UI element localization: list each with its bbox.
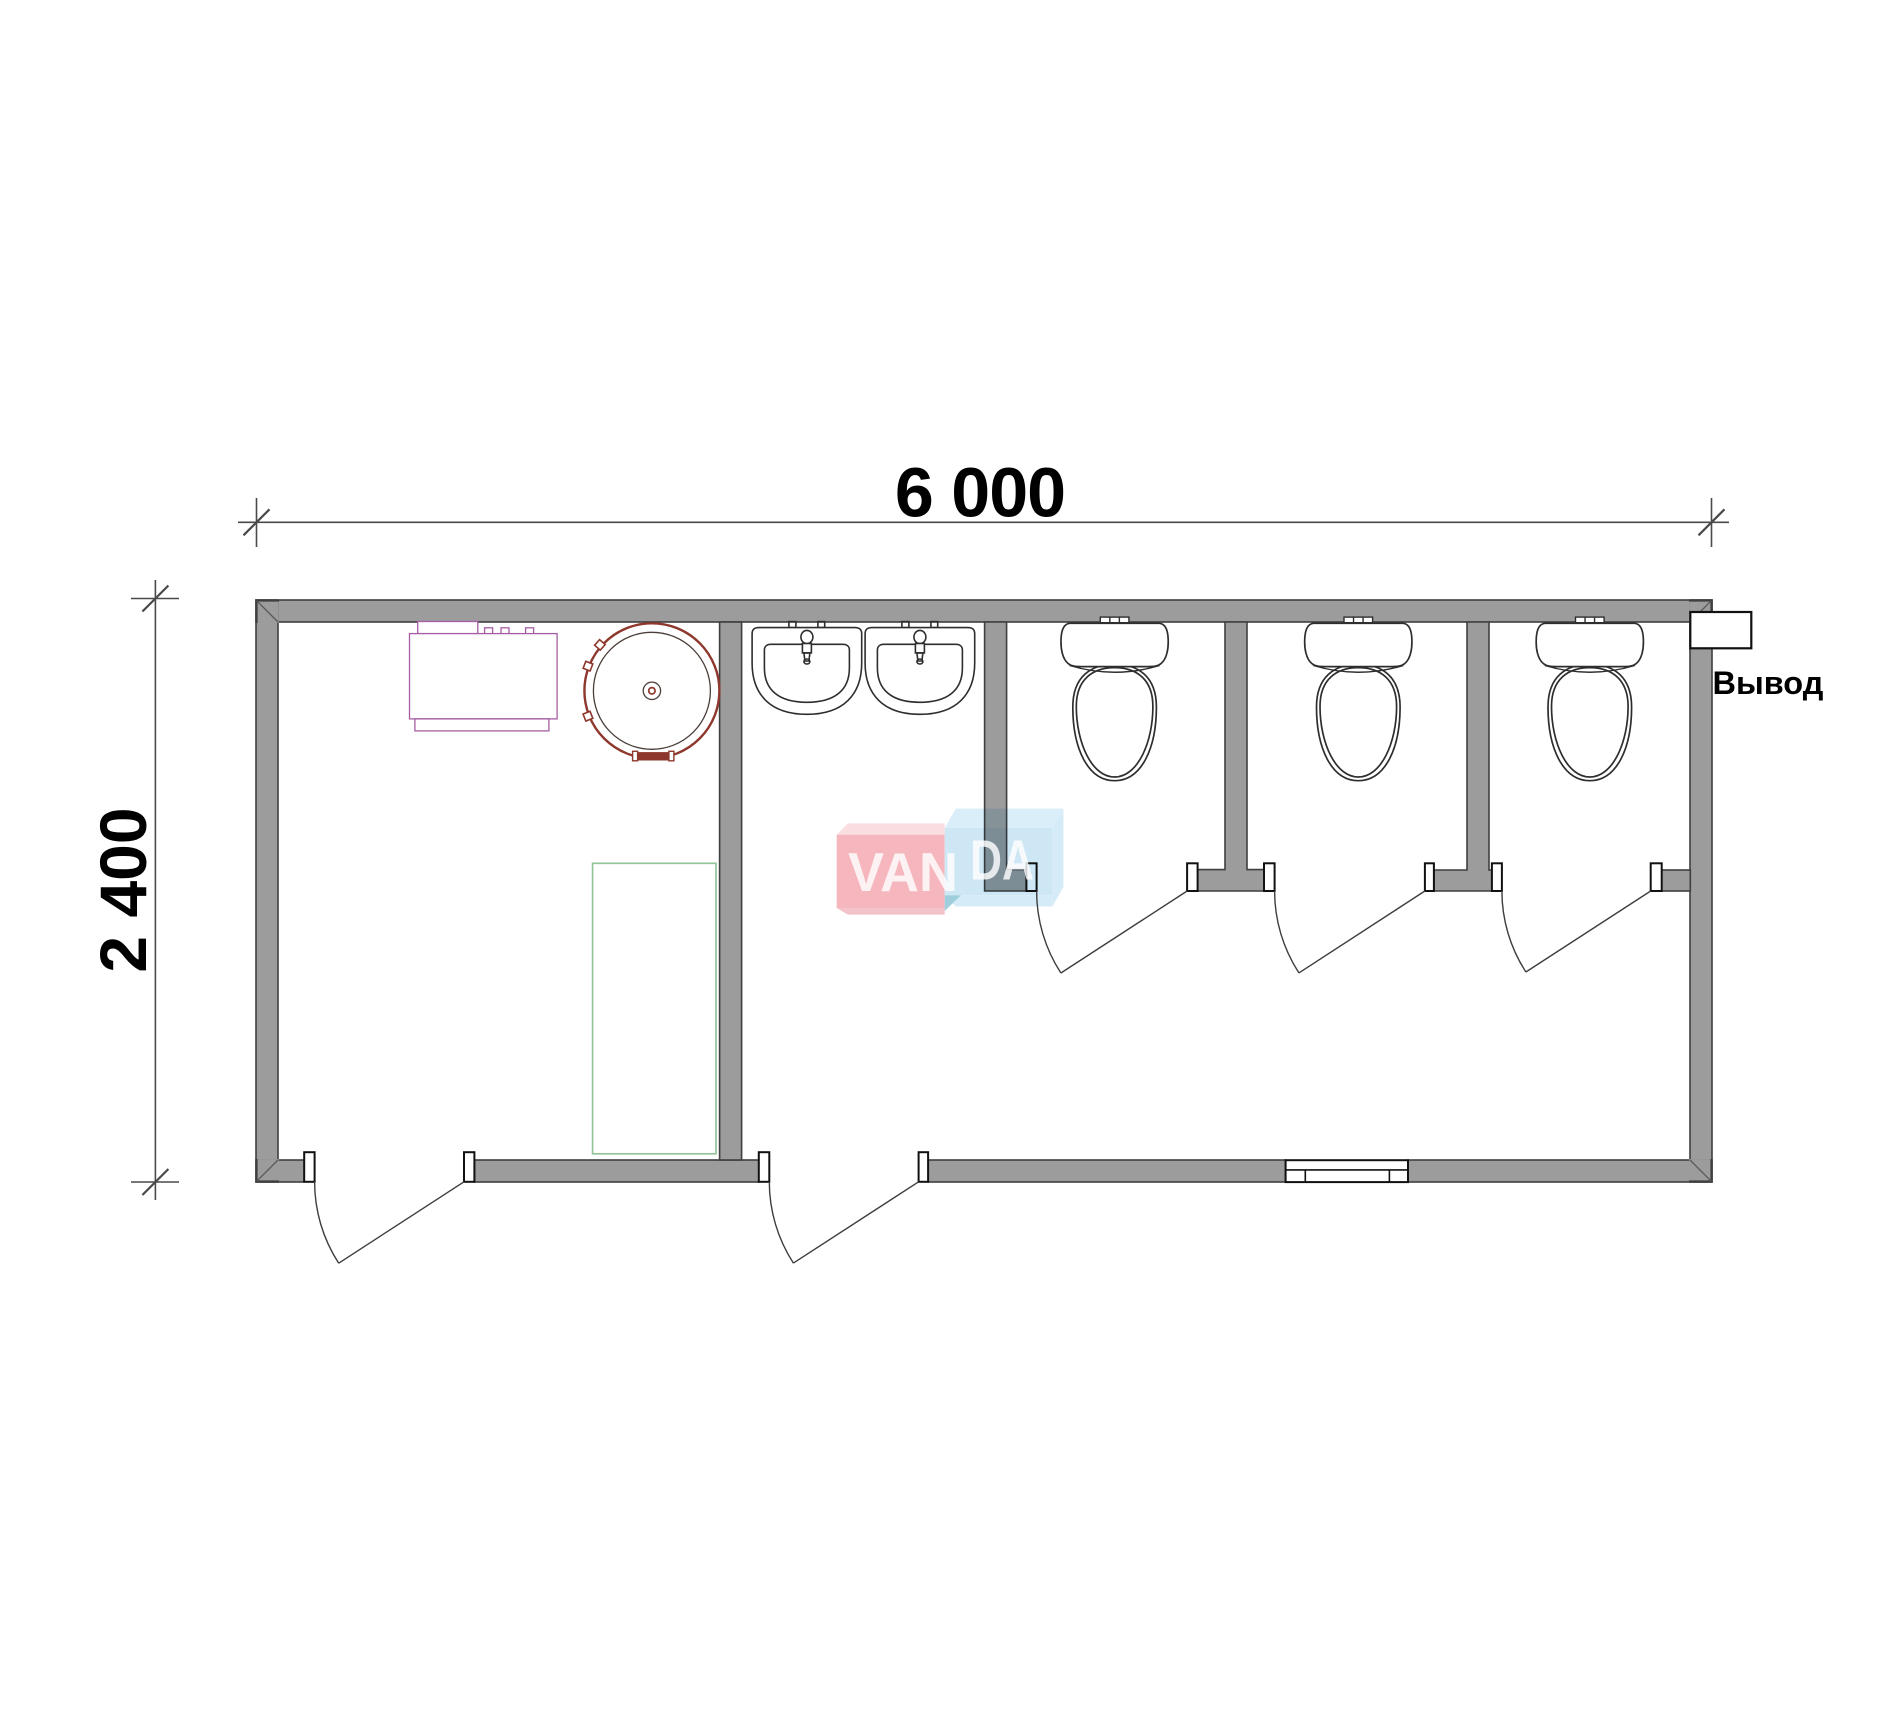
svg-text:2 400: 2 400: [86, 807, 160, 972]
svg-text:Вывод: Вывод: [1713, 665, 1824, 701]
svg-text:6 000: 6 000: [895, 454, 1065, 532]
svg-text:DA: DA: [970, 829, 1034, 893]
svg-text:VAN: VAN: [848, 841, 958, 903]
